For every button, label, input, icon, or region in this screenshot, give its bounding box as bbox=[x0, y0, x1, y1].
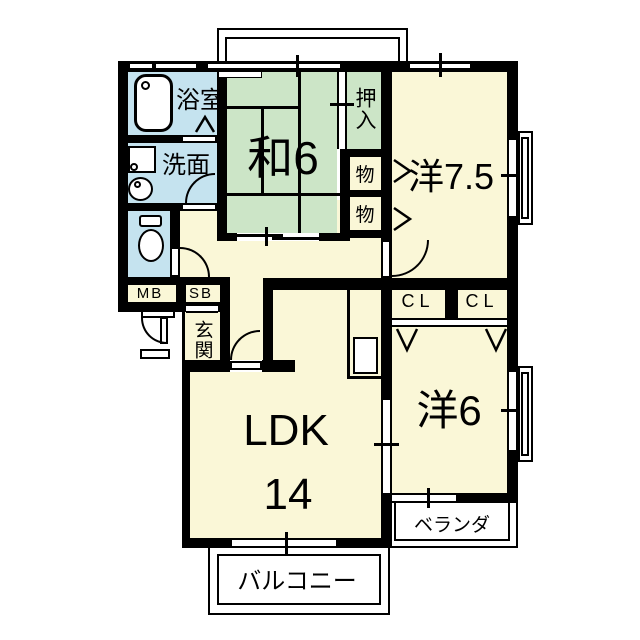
window bbox=[208, 62, 340, 70]
tick bbox=[427, 488, 430, 508]
entrance-inner-track bbox=[186, 304, 218, 313]
bay-window-inner bbox=[521, 372, 529, 456]
oshiire-label: 押入 bbox=[351, 80, 377, 138]
kitchen-zone-line bbox=[347, 290, 350, 378]
bathroom-label: 浴室 bbox=[160, 85, 240, 109]
toilet-bowl-icon bbox=[138, 229, 164, 262]
japanese-room-label: 和6 bbox=[223, 130, 343, 180]
window bbox=[232, 538, 336, 548]
wall-segment bbox=[381, 290, 392, 400]
western75-label: 洋7.5 bbox=[391, 154, 511, 194]
closet1-label: CL bbox=[393, 290, 443, 312]
washroom-label: 洗面 bbox=[146, 150, 226, 174]
tick bbox=[265, 227, 268, 246]
toilet-tank-icon bbox=[139, 215, 162, 227]
wall-segment bbox=[381, 503, 392, 548]
kitchen-zone-line bbox=[347, 376, 382, 379]
storage1-label: 物 bbox=[352, 162, 378, 184]
meter-box-label: MB bbox=[126, 284, 174, 302]
balcony-label: バルコニー bbox=[227, 564, 367, 592]
ldk-size-label: 14 bbox=[228, 472, 348, 518]
entrance-side-line bbox=[182, 312, 185, 372]
entry-door-leaf bbox=[141, 310, 175, 318]
ldk-label: LDK bbox=[226, 408, 346, 454]
entry-step bbox=[140, 349, 170, 359]
veranda-label: ベランダ bbox=[392, 512, 512, 534]
wall-segment bbox=[118, 61, 128, 312]
bathtub-faucet-icon bbox=[141, 81, 150, 90]
window bbox=[392, 493, 456, 503]
entrance-label: 玄関 bbox=[189, 316, 215, 364]
wall-segment bbox=[263, 290, 273, 360]
bay-window-inner bbox=[521, 137, 529, 219]
floorplan: 浴室 洗面 和6 押入 物 物 洋7.5 CL CL 洋6 LDK 14 MB … bbox=[0, 0, 640, 640]
toilet-door-leaf bbox=[170, 247, 180, 277]
top-balcony-inner-line bbox=[225, 37, 400, 64]
western6-label: 洋6 bbox=[389, 385, 509, 429]
wall-segment bbox=[263, 278, 518, 290]
ldk-door-leaf bbox=[230, 361, 262, 370]
western75-door-leaf bbox=[381, 240, 391, 278]
closet-slider-track bbox=[392, 318, 507, 327]
bathroom-door-track bbox=[183, 135, 215, 143]
kitchen-counter-icon bbox=[353, 337, 378, 374]
entry-door-arc bbox=[141, 318, 167, 344]
window bbox=[156, 62, 196, 70]
sink-faucet-icon bbox=[134, 181, 141, 188]
slider-panel-line bbox=[272, 237, 319, 240]
sink-icon bbox=[128, 177, 153, 201]
tick bbox=[439, 53, 442, 77]
shaft-box-label: SB bbox=[177, 284, 225, 302]
closet2-label: CL bbox=[457, 290, 507, 312]
storage2-label: 物 bbox=[352, 202, 378, 224]
tick bbox=[285, 532, 288, 554]
tick bbox=[374, 443, 399, 446]
tatami-line bbox=[227, 193, 340, 196]
window-sash bbox=[218, 71, 262, 78]
window bbox=[130, 62, 152, 70]
washroom-door-opening bbox=[183, 203, 215, 211]
washing-machine-drain-icon bbox=[130, 163, 138, 171]
wall-segment bbox=[350, 190, 381, 197]
wall-segment bbox=[182, 372, 190, 548]
tick bbox=[296, 55, 299, 77]
